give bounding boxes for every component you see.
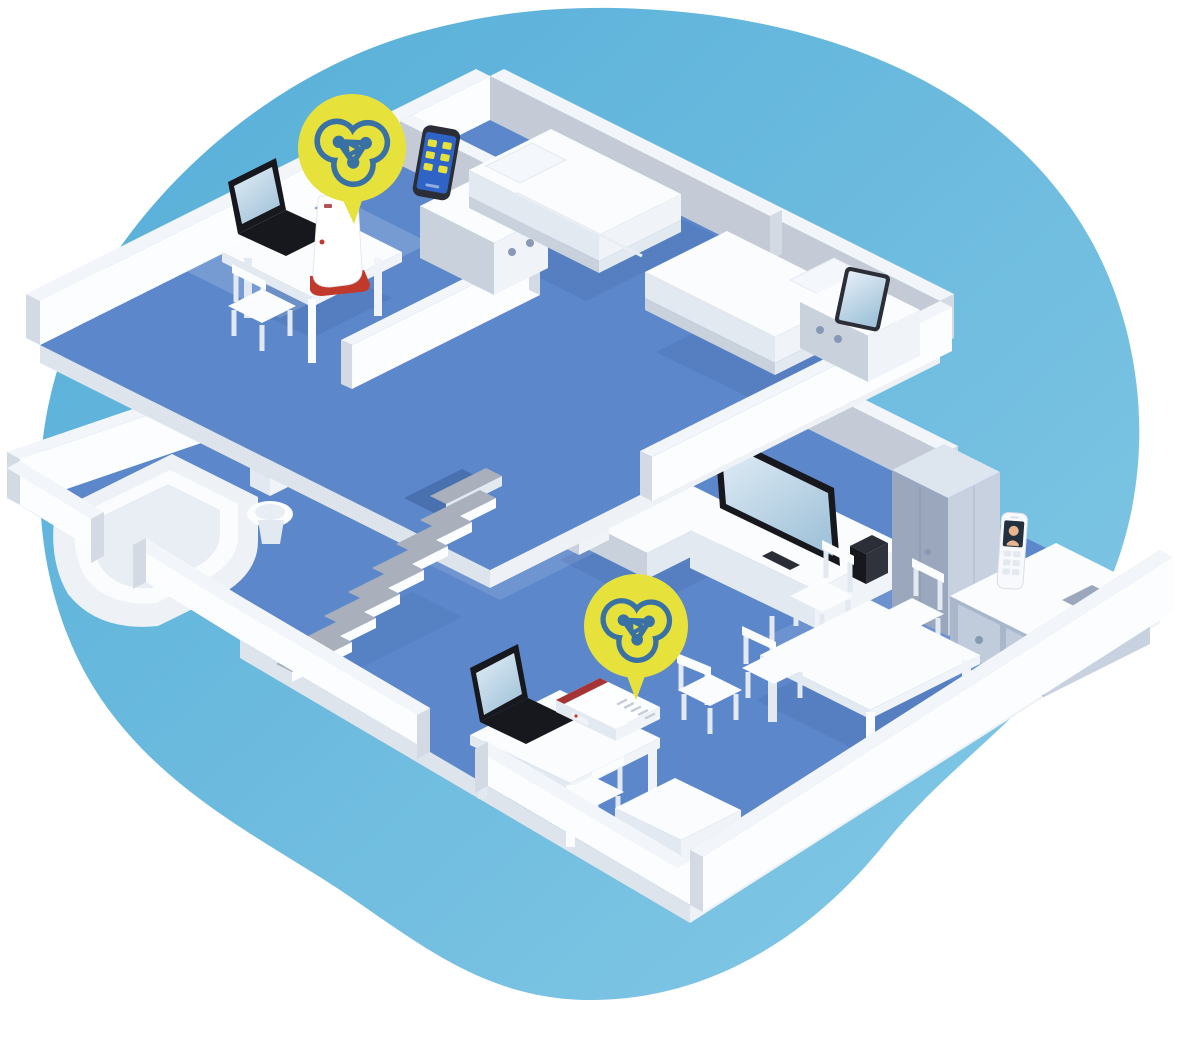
dresser-knob <box>834 335 842 343</box>
dresser-knob <box>508 248 516 256</box>
wardrobe-knob <box>925 549 931 555</box>
illustration-canvas: Isometric two-story home with mesh Wi-Fi… <box>0 0 1200 1040</box>
repeater-led <box>320 240 325 245</box>
drawer-knob <box>975 636 983 644</box>
dresser-knob <box>526 239 534 247</box>
dresser-knob <box>816 326 824 334</box>
mesh-home-illustration: Isometric two-story home with mesh Wi-Fi… <box>0 0 1200 1040</box>
cordless-phone <box>997 512 1028 590</box>
